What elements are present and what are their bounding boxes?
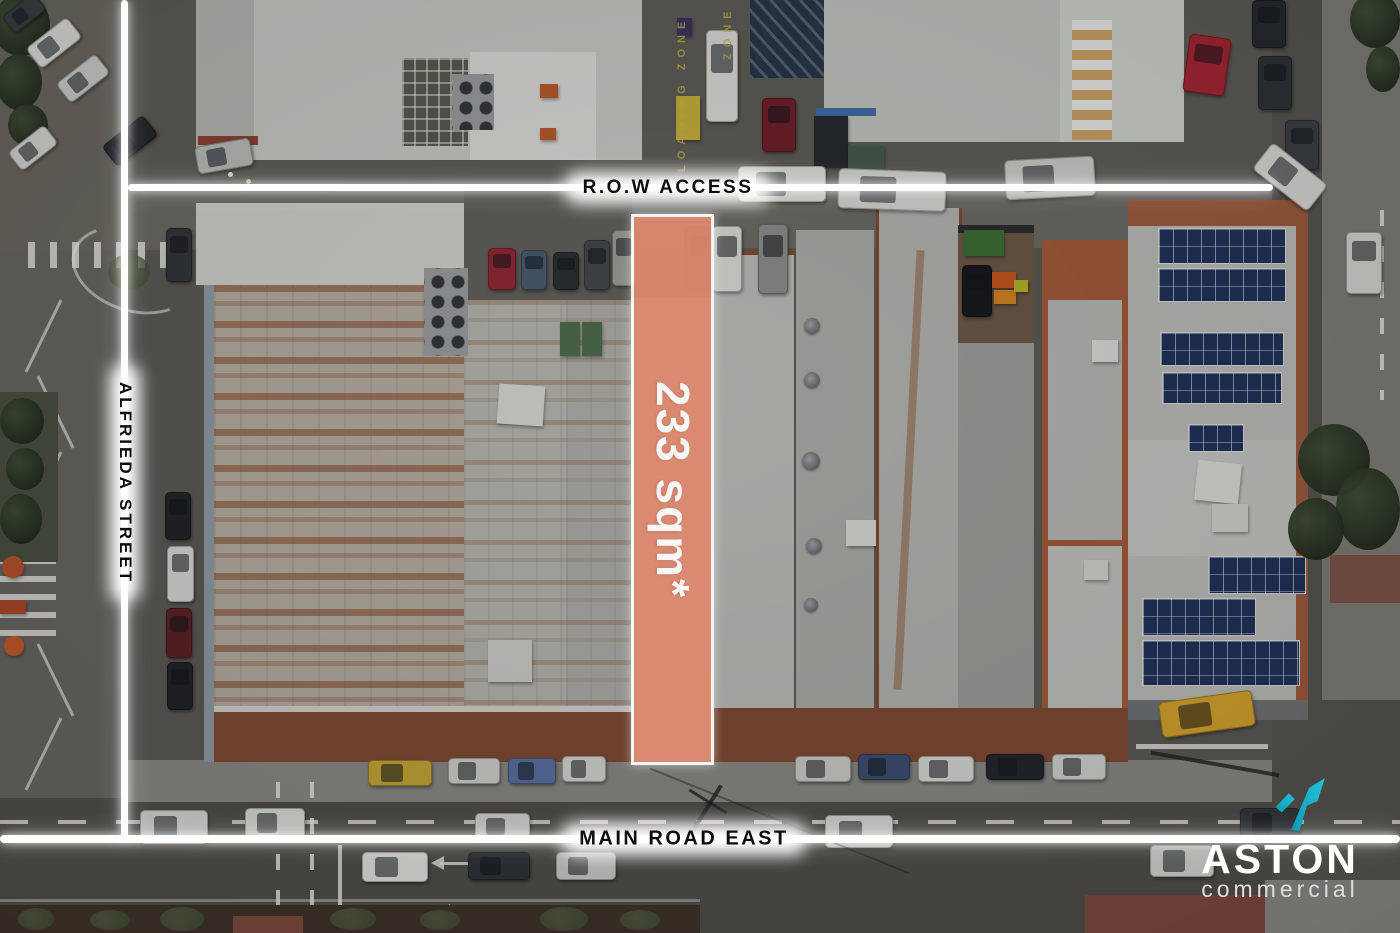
- solar-panels: [1162, 372, 1282, 404]
- solar-panels: [1142, 598, 1256, 636]
- roof: [464, 300, 566, 762]
- area-label: 233 sqm*: [646, 380, 700, 598]
- solar-panels: [1158, 268, 1286, 302]
- aston-arrow-icon: [1272, 768, 1332, 834]
- logo-subtitle-text: commercial: [1180, 876, 1380, 903]
- roof-strip: [714, 250, 794, 717]
- roof-strip: [958, 343, 1034, 712]
- roof: [566, 300, 632, 762]
- ac-units: [424, 268, 468, 356]
- loading-zone-road-text: LOADING ZONE: [676, 2, 688, 172]
- solar-panels: [1142, 640, 1300, 686]
- annotated-aerial-photo: LOADING ZONE ZONE 233 sqm* R.O.W ACCESS …: [0, 0, 1400, 933]
- solar-panels: [1188, 424, 1244, 452]
- solar-panels: [1160, 332, 1284, 366]
- roof-strip: [796, 230, 874, 712]
- building-roof-navy: [750, 0, 824, 78]
- rusty-roof: [214, 285, 464, 762]
- shop-awning: [214, 712, 632, 762]
- solar-panels: [1208, 556, 1306, 594]
- brick-crossing: [233, 916, 303, 933]
- solar-panels: [1158, 228, 1286, 264]
- property-highlight-233sqm: 233 sqm*: [631, 214, 714, 765]
- zone-road-text: ZONE: [722, 0, 734, 60]
- solar-building: [1128, 200, 1308, 226]
